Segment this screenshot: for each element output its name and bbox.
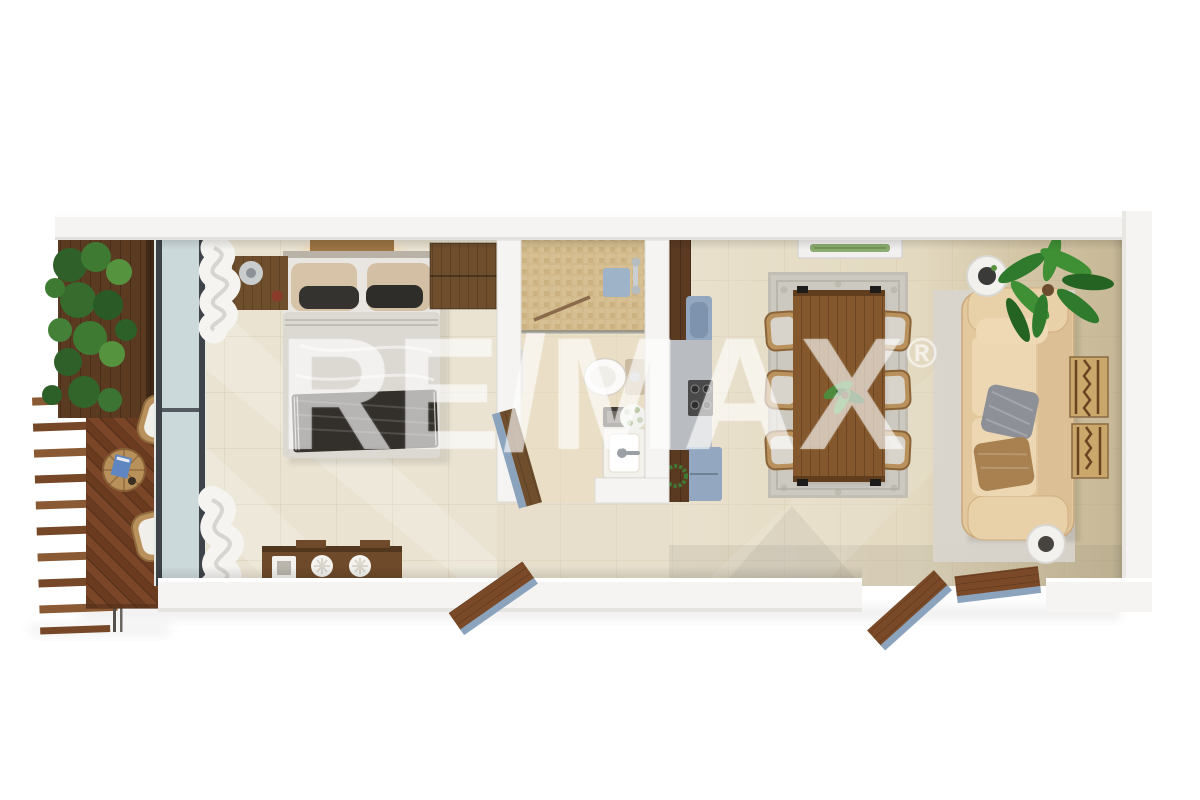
wall-hanging bbox=[1072, 424, 1108, 478]
floor-plan-render: RE/MAX® bbox=[0, 0, 1200, 800]
wall-hanging bbox=[1070, 357, 1108, 417]
registered-trademark-symbol: ® bbox=[906, 329, 937, 376]
brown-throw-pillow bbox=[973, 436, 1036, 492]
round-side-table bbox=[103, 449, 145, 491]
right-wall bbox=[1122, 211, 1152, 612]
remax-watermark: RE/MAX® bbox=[278, 314, 937, 474]
decor-item bbox=[272, 291, 283, 302]
watermark-text: RE/MAX bbox=[278, 304, 906, 483]
glass-sliding-wall bbox=[154, 240, 206, 586]
wardrobe bbox=[430, 243, 498, 309]
top-wall bbox=[55, 211, 1152, 240]
round-side-table bbox=[1027, 525, 1065, 563]
sheer-curtain bbox=[212, 248, 227, 330]
